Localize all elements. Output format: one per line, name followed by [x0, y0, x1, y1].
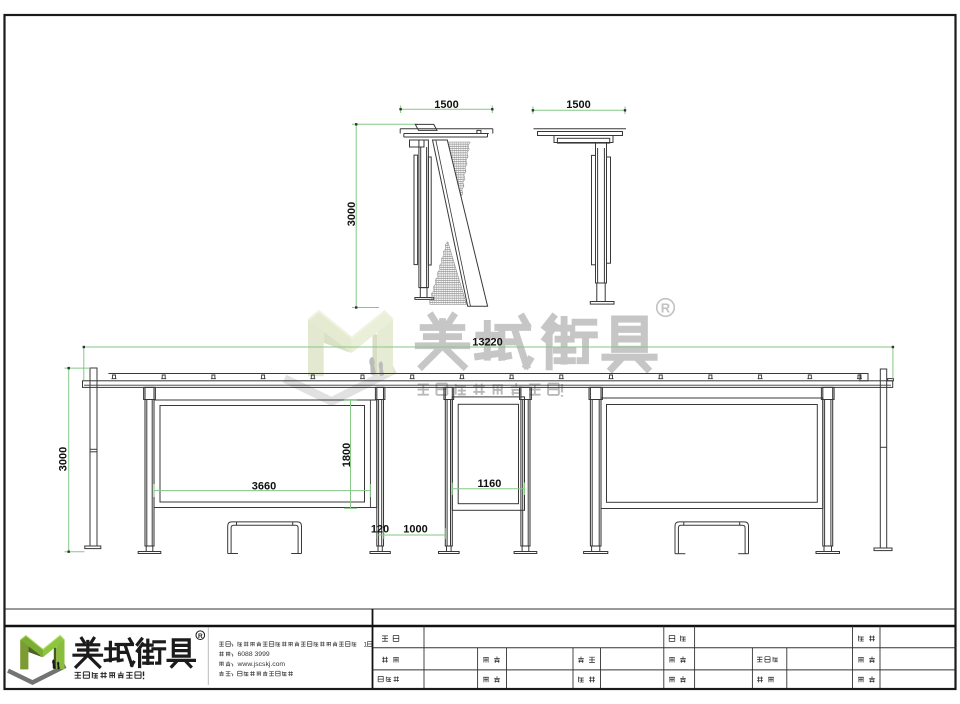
- svg-text:1000: 1000: [403, 524, 427, 536]
- svg-text:www.jscskj.com: www.jscskj.com: [237, 661, 286, 668]
- svg-text:13220: 13220: [472, 337, 503, 349]
- svg-text:6088 3999: 6088 3999: [238, 651, 270, 658]
- svg-text:1160: 1160: [477, 478, 501, 490]
- svg-text:R: R: [661, 300, 671, 315]
- svg-text:1500: 1500: [434, 99, 458, 111]
- svg-text:1500: 1500: [566, 99, 590, 111]
- svg-text:R: R: [198, 633, 203, 640]
- svg-text:3660: 3660: [252, 480, 276, 492]
- svg-text:1: 1: [364, 641, 368, 648]
- svg-text:3000: 3000: [58, 447, 70, 471]
- svg-text:3000: 3000: [346, 202, 358, 226]
- svg-text:1800: 1800: [341, 443, 353, 467]
- svg-text:120: 120: [371, 524, 389, 536]
